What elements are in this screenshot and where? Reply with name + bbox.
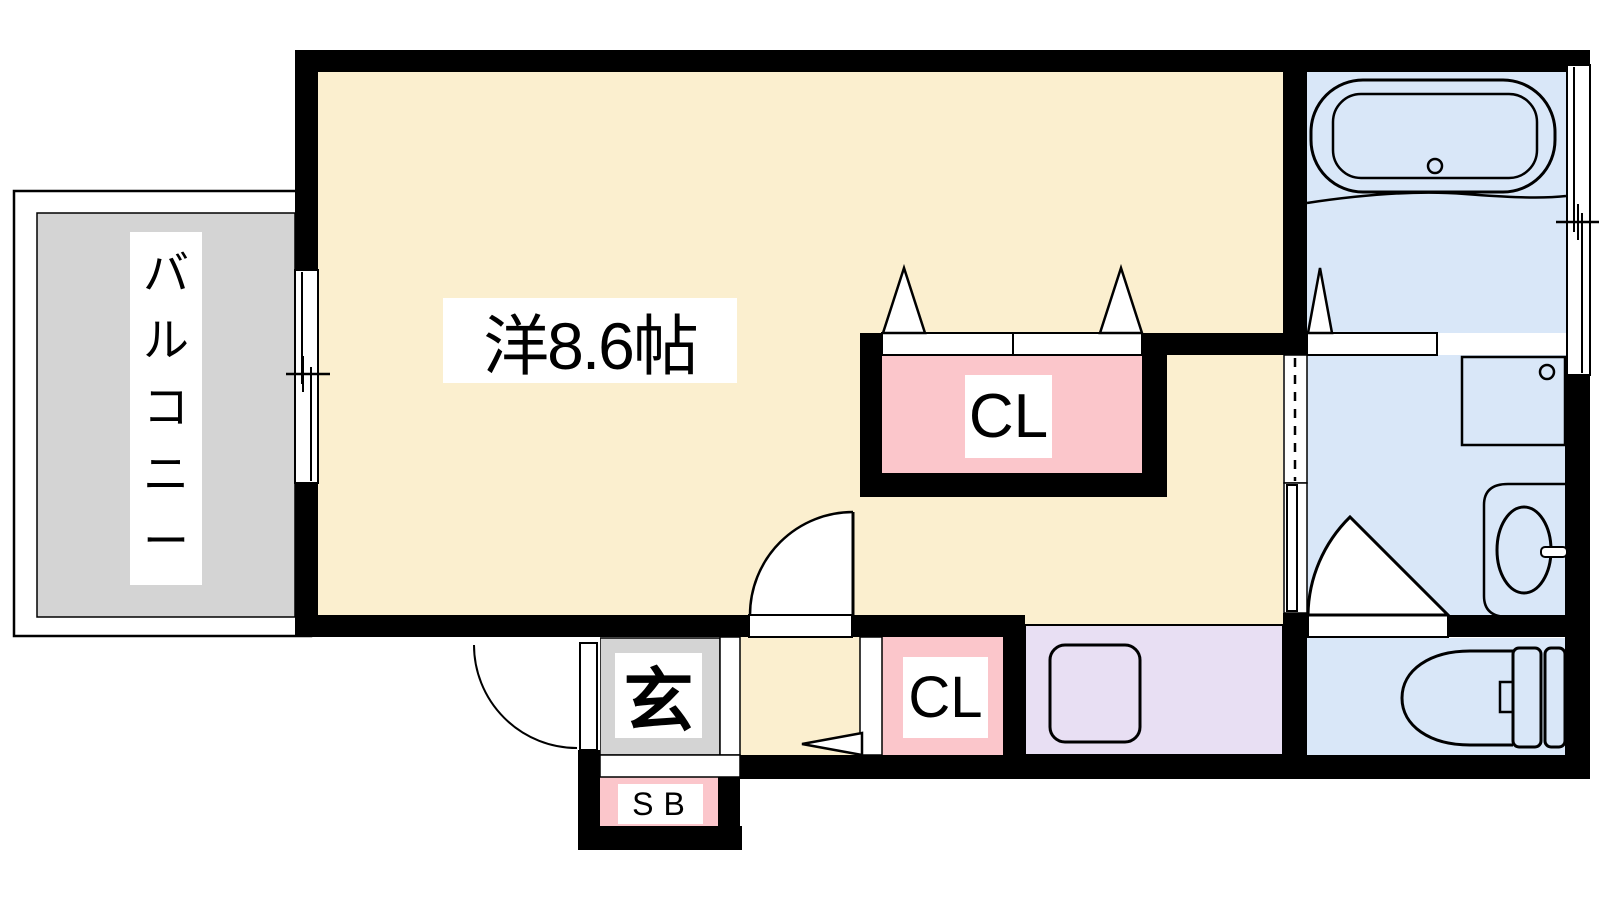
floor-plan: 洋8.6帖 バルコニー CL CL 玄 SB xyxy=(0,0,1600,900)
faucet-icon xyxy=(1541,547,1567,557)
shoe-box-label: SB xyxy=(618,784,703,824)
sliding-door-panel xyxy=(1287,485,1297,611)
floor-plan-drawing xyxy=(0,0,1600,900)
closet-main-label: CL xyxy=(965,375,1052,458)
main-room-label: 洋8.6帖 xyxy=(443,298,737,383)
closet-hall-label: CL xyxy=(903,657,988,738)
entrance-door xyxy=(474,637,600,750)
shoe-box-opening xyxy=(600,755,740,777)
entrance-hall-step xyxy=(720,637,740,755)
entrance-label: 玄 xyxy=(615,653,702,738)
sliding-door xyxy=(1284,355,1307,613)
entrance-door-leaf xyxy=(580,643,597,750)
hallway-door-threshold xyxy=(749,615,852,637)
balcony-label: バルコニー xyxy=(130,232,202,585)
